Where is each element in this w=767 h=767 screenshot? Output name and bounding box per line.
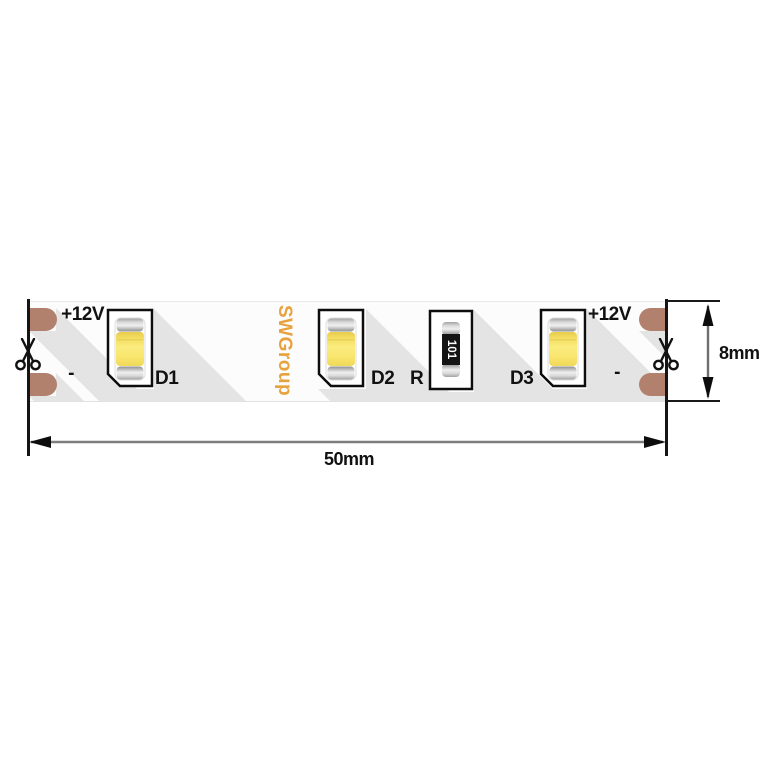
label-d2: D2 bbox=[371, 368, 394, 390]
led-strip-diagram: SWGroup 101 +12V - D1 D2 R D3 bbox=[0, 0, 767, 767]
led-d2 bbox=[317, 308, 365, 388]
solder-pad-left-positive bbox=[29, 308, 57, 331]
label-plus12v-left: +12V bbox=[54, 304, 104, 326]
dimension-label-height: 8mm bbox=[719, 343, 760, 364]
solder-pad-right-negative bbox=[639, 373, 667, 396]
led-d3 bbox=[539, 308, 587, 388]
dimension-arrow-height bbox=[697, 302, 719, 401]
label-minus-left: - bbox=[62, 363, 80, 385]
resistor-value: 101 bbox=[445, 340, 457, 360]
brand-text: SWGroup bbox=[270, 303, 298, 399]
solder-pad-right-positive bbox=[639, 308, 667, 331]
dimension-label-length: 50mm bbox=[301, 449, 397, 470]
label-r: R bbox=[410, 368, 423, 390]
label-d3: D3 bbox=[510, 368, 533, 390]
label-d1: D1 bbox=[155, 368, 178, 390]
label-plus12v-right: +12V bbox=[588, 304, 638, 326]
scissors-icon-left bbox=[15, 338, 41, 372]
scissors-icon-right bbox=[653, 338, 679, 372]
led-d1 bbox=[106, 308, 154, 388]
resistor-r: 101 bbox=[428, 309, 474, 391]
label-minus-right: - bbox=[608, 362, 626, 384]
solder-pad-left-negative bbox=[29, 373, 57, 396]
